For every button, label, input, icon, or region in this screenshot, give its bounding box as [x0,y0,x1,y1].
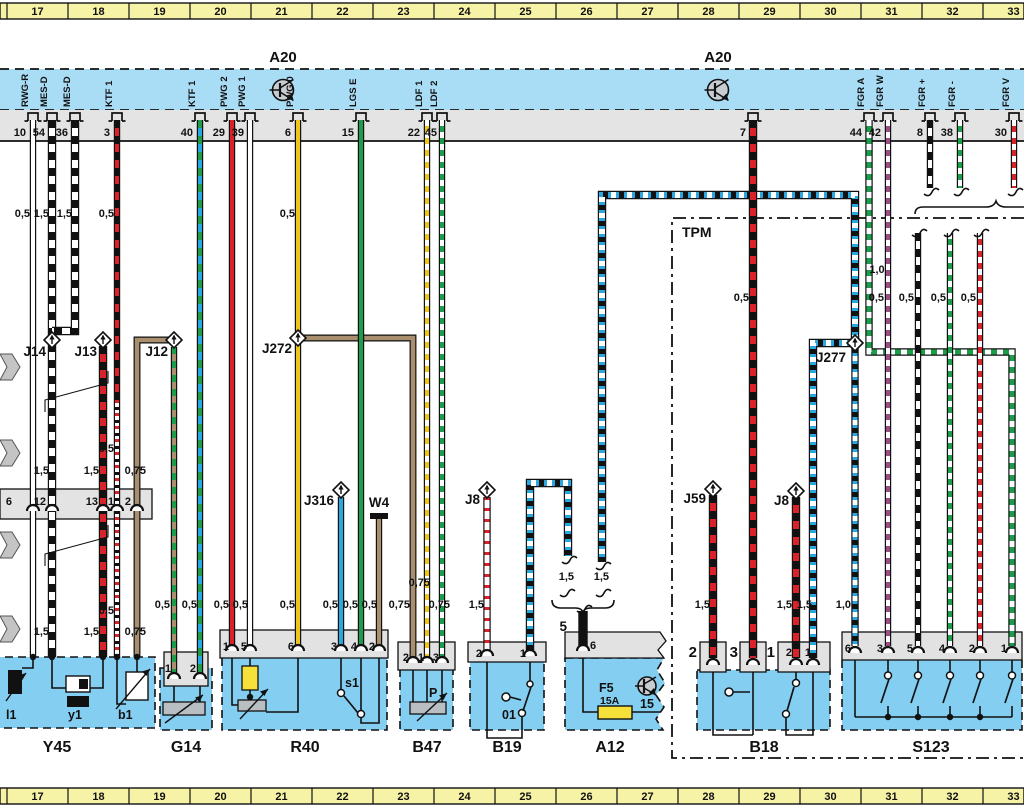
sub-label: y1 [68,708,82,722]
junction-dot [30,654,36,660]
pin-number: 36 [56,127,68,139]
s123-switch-contact [947,672,954,679]
connector-contact [481,650,493,656]
contact [519,710,526,717]
connector-contact [46,505,58,511]
component-pin: 1 [418,652,424,664]
pin-number: 29 [213,127,225,139]
ruler-number: 21 [275,791,287,803]
junction-dot [247,694,253,700]
signal-label: PWG 0 [285,76,296,107]
pin-number: 15 [342,127,354,139]
component-pin: 5 [907,643,913,655]
wire-size: 1,5 [777,599,792,611]
ruler-number: 26 [580,791,592,803]
junction-dot [134,654,140,660]
wire-size: 0,5 [99,605,114,617]
terminal-label: 5 [559,619,567,634]
wire-end-curl [954,188,969,195]
signal-label: MES-D [39,76,50,107]
component-pin: 1 [767,644,775,661]
junction-label: J277 [816,350,846,365]
ruler-number: 24 [458,791,471,803]
wire-size: 0,5 [182,599,197,611]
component-label-a12: A12 [595,739,624,756]
wire-end-curl [1008,188,1023,195]
component-pin: 4 [939,643,946,655]
connector-contact [807,659,819,665]
continuation-arrow-icon [0,440,20,466]
junction-dot [977,714,983,720]
sub-label: 15 [640,697,654,711]
sub-label: s1 [345,676,359,690]
ruler-number: 20 [214,6,226,18]
schematic-page: 1717181819192020212122222323242425252626… [0,0,1024,807]
wire-size: 1,5 [84,626,99,638]
wire-size: 1,5 [34,626,49,638]
ruler-number: 30 [824,6,836,18]
wire-end-curl [562,556,577,563]
wire-size: 0,5 [323,599,338,611]
b47-sensor-body [410,702,446,714]
wire-size: 0,75 [125,465,146,477]
ruler-number: 26 [580,6,592,18]
component-pin: 3 [433,652,439,664]
w4-ground-bar [370,513,388,519]
wire-size: 0,5 [15,208,30,220]
component-pin: 2 [476,648,482,660]
connector-contact [944,647,956,653]
connector-contact [131,505,143,511]
junction-label: J316 [304,493,335,508]
contact [783,711,790,718]
junction-dot [915,714,921,720]
junction-label: J59 [683,491,706,506]
component-label-b19: B19 [492,739,521,756]
signal-label: PWG 2 [219,76,230,107]
ruler-number: 33 [1007,791,1019,803]
wire-size: 1,5 [695,599,710,611]
ruler-number: 19 [153,6,165,18]
junction-dot [885,714,891,720]
ruler-number: 32 [946,6,958,18]
wire-size: 1,5 [594,571,609,583]
pin-number: 40 [181,127,193,139]
pin-number: 6 [6,496,12,508]
wire-end-curl [560,589,575,596]
wire-size: 0,5 [961,292,976,304]
pin-number: 8 [917,127,923,139]
wire-size: 0,5 [869,292,884,304]
wire-size: 0,75 [389,599,410,611]
ruler-number: 24 [458,6,471,18]
component-pin: 2 [369,641,375,653]
signal-label: KTF 1 [187,80,198,107]
component-box-b18 [697,670,830,730]
ruler-number: 29 [763,791,775,803]
component-pin: 3 [877,643,883,655]
contact [502,693,510,701]
component-pin: 3 [331,641,337,653]
component-label-b18: B18 [749,739,778,756]
r40-pot-track [242,666,258,690]
ruler-number: 31 [885,791,897,803]
connector-contact [790,659,802,665]
component-pin: 1 [165,663,171,675]
y45-y1-coil [67,696,89,707]
wire-size: 0,5 [734,292,749,304]
pin-number: 44 [850,127,863,139]
signal-label: PWG 1 [237,76,248,107]
junction-label: J272 [262,341,292,356]
wire-size: 1,0 [836,599,851,611]
junction-label: J12 [145,344,168,359]
signal-label: LDF 1 [414,80,425,107]
pin-number: 2 [125,496,131,508]
junction-label: J13 [74,344,97,359]
wire-end-curl [924,188,939,195]
ruler-number: 28 [702,6,714,18]
ruler-number: 30 [824,791,836,803]
s123-switch-contact [915,672,922,679]
contact [725,688,733,696]
pin-number: 12 [34,496,46,508]
component-label-y45: Y45 [43,739,72,756]
component-pin: 4 [351,641,358,653]
pin-number: 6 [285,127,291,139]
component-label-s123: S123 [912,739,949,756]
connector-contact [1006,647,1018,653]
pin-number: 39 [232,127,244,139]
signal-label: MES-D [62,76,73,107]
wire-size: 0,5 [214,599,229,611]
pin-number: 45 [425,127,437,139]
continuation-arrow-icon [0,354,20,380]
signal-label: RWG-R [20,74,31,107]
component-pin: 2 [403,652,409,664]
junction-dot [49,654,55,660]
wire-size: 0,5 [899,292,914,304]
pin-number: 3 [104,127,110,139]
signal-label: FGR W [875,75,886,107]
pin-number: 10 [14,127,26,139]
ecu-label-left: A20 [269,49,297,66]
wire-size: 0,5 [233,599,248,611]
ruler-number: 32 [946,791,958,803]
wire-end-curl [596,562,611,569]
ruler-number: 22 [336,6,348,18]
wire-size: 1,5 [797,599,812,611]
junction-dot [947,714,953,720]
component-label-g14: G14 [171,739,201,756]
component-pin: 6 [288,641,294,653]
wire-size: 0,5 [155,599,170,611]
signal-label: FGR A [856,78,867,107]
ruler-number: 21 [275,6,287,18]
component-pin: 6 [845,643,851,655]
pin-number: 30 [995,127,1007,139]
pin-number: 42 [869,127,881,139]
sub-label: 15A [600,695,620,707]
pin-number: 22 [408,127,420,139]
component-label-b47: B47 [412,739,441,756]
s123-switch-contact [1009,672,1016,679]
ecu-bus-band [0,69,1024,110]
component-box-s123 [842,658,1022,730]
wire-size: 0,5 [99,208,114,220]
connector-contact [882,647,894,653]
sub-label: F5 [599,681,614,695]
component-pin: 1 [805,647,811,659]
wire-size: 1,5 [34,208,49,220]
wire-size: 1,5 [559,571,574,583]
pin-number: 1 [108,496,114,508]
ruler-number: 23 [397,791,409,803]
ruler-number: 20 [214,791,226,803]
signal-label: LDF 2 [429,81,440,107]
signal-label: FGR - [947,81,958,107]
wire-end-curl [596,589,611,596]
contact [358,711,365,718]
ruler-number: 18 [92,791,104,803]
brace-a12 [552,600,614,614]
signal-label: LGS E [348,78,359,107]
sub-label: P [429,686,437,700]
component-pin: 6 [590,640,596,652]
wire-size: 0,5 [931,292,946,304]
wiring-diagram: 1717181819192020212122222323242425252626… [0,0,1024,807]
ruler-number: 19 [153,791,165,803]
tpm-label: TPM [682,224,712,240]
pin-number: 38 [941,127,953,139]
sub-label: l1 [6,708,16,722]
y45-y1-valve-inner [79,679,88,689]
ruler-number: 23 [397,6,409,18]
continuation-arrow-icon [0,616,20,642]
connector-contact [912,647,924,653]
sub-label: 01 [502,708,516,722]
component-pin: 1 [223,641,229,653]
junction-label: J14 [23,344,46,359]
ruler-number: 17 [31,6,43,18]
component-pin: 3 [730,644,738,661]
wire-size: 0,75 [429,599,450,611]
junction-dot [114,654,120,660]
pin-number: 13 [86,496,98,508]
connector-contact [707,659,719,665]
contact [527,681,533,687]
component-pin: 2 [786,647,792,659]
ruler-number: 33 [1007,6,1019,18]
wire-size: 0,5 [343,599,358,611]
a12-fuse-f5 [598,706,632,719]
wire-size: 0,75 [409,577,430,589]
wire-size: 0,5 [280,208,295,220]
ground-label: W4 [369,495,390,510]
s123-switch-contact [977,672,984,679]
ruler-number: 28 [702,791,714,803]
continuation-arrow-icon [0,532,20,558]
ruler-number: 31 [885,6,897,18]
brace-right [915,201,1024,214]
component-pin: 2 [190,663,196,675]
component-pin: 1 [1001,643,1007,655]
component-pin: 5 [241,641,247,653]
component-label-r40: R40 [290,739,319,756]
ruler-number: 27 [641,791,653,803]
signal-label: KTF 1 [104,80,115,107]
sub-label: b1 [118,708,133,722]
junction-dot [100,654,106,660]
ecu-label-right: A20 [704,49,732,66]
component-pin: 2 [969,643,975,655]
junction-label: J8 [774,493,790,508]
wire-size: 1,5 [469,599,484,611]
wire-size: 0,5 [362,599,377,611]
wire-size: 1,5 [57,208,72,220]
pin-number: 54 [33,127,46,139]
pin-number: 7 [740,127,746,139]
wire-size: 0,75 [125,626,146,638]
signal-label: FGR V [1001,77,1012,107]
wire-size: 1,5 [84,465,99,477]
ruler-number: 25 [519,791,531,803]
ruler-number: 18 [92,6,104,18]
wire-size: 0,5 [99,443,114,455]
contact [793,680,800,687]
ruler-number: 29 [763,6,775,18]
ruler-number: 25 [519,6,531,18]
ruler-number: 22 [336,791,348,803]
component-pin: 1 [520,648,526,660]
connector-contact [577,645,589,651]
wire-size: 1,0 [869,264,884,276]
ruler-number: 27 [641,6,653,18]
component-header-s123 [842,632,1022,660]
component-pin: 2 [689,644,697,661]
ruler-number: 17 [31,791,43,803]
wire-size: 0,5 [280,599,295,611]
contact [338,690,345,697]
wire-size: 1,5 [34,465,49,477]
connector-contact [974,647,986,653]
signal-label: FGR + [917,78,928,107]
junction-label: J8 [465,492,481,507]
connector-contact [747,659,759,665]
s123-switch-contact [885,672,892,679]
